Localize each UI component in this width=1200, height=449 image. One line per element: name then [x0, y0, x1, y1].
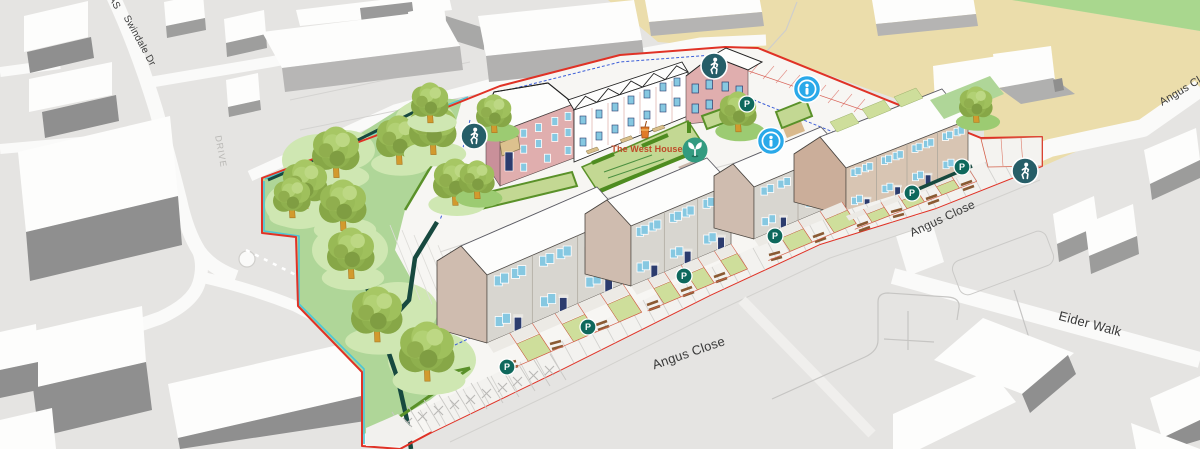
svg-text:P: P: [959, 162, 965, 172]
svg-text:P: P: [585, 322, 591, 332]
svg-text:The West House: The West House: [611, 144, 682, 154]
svg-text:P: P: [909, 188, 915, 198]
svg-text:P: P: [681, 271, 687, 281]
svg-text:P: P: [744, 99, 750, 109]
svg-text:P: P: [504, 362, 510, 372]
svg-text:P: P: [772, 231, 778, 241]
